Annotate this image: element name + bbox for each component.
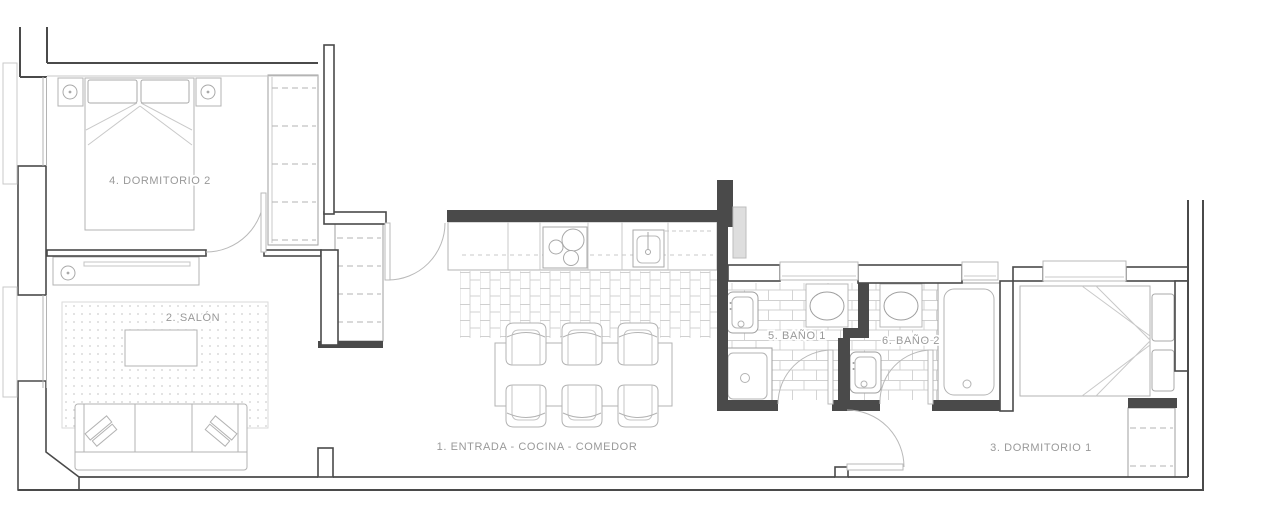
- coffee-table: [125, 330, 197, 366]
- pillow: [88, 80, 137, 103]
- label-dormitorio-2: 4. DORMITORIO 2: [109, 175, 211, 187]
- right-wall: [1188, 200, 1203, 490]
- kitchen-back-wall: [447, 210, 717, 222]
- window-bano-1: [780, 262, 858, 280]
- kitchen-sink: [633, 230, 664, 267]
- cooktop: [543, 227, 587, 268]
- label-bano-2: 6. BAÑO 2: [882, 334, 940, 347]
- washbasin: [806, 284, 848, 327]
- toilet: [727, 292, 758, 333]
- dormitorio1-left-wall: [1000, 281, 1013, 411]
- hall-stub-wall: [318, 448, 333, 477]
- wardrobe-dormitorio-1: [1128, 408, 1175, 477]
- speaker-icon: [61, 266, 75, 280]
- room-dormitorio-2: [58, 75, 318, 245]
- tv-console: [53, 257, 199, 285]
- window-bano-2: [962, 262, 998, 280]
- sofa: [75, 404, 247, 470]
- floor-plan-canvas: 4. DORMITORIO 2 2. SALÓN 1. ENTRADA - CO…: [0, 0, 1264, 531]
- duct-shaft: [733, 207, 746, 258]
- toilet: [850, 352, 881, 393]
- lamp-icon: [201, 85, 215, 99]
- door-entrance: [847, 410, 904, 470]
- dormitorio1-pilaster: [1175, 281, 1188, 371]
- bathroom-left-wall: [717, 222, 728, 411]
- shaft-wall: [717, 180, 733, 227]
- room-salon: [53, 257, 268, 470]
- window-dormitorio-1: [1043, 261, 1126, 281]
- wardrobe-dormitorio-2: [268, 75, 318, 245]
- balcony-outline-top: [3, 63, 17, 184]
- shower: [723, 348, 772, 404]
- pillow: [1152, 294, 1174, 341]
- label-dormitorio-1: 3. DORMITORIO 1: [990, 442, 1092, 454]
- floor-plan-drawing: 4. DORMITORIO 2 2. SALÓN 1. ENTRADA - CO…: [0, 0, 1264, 531]
- top-left-walls: [20, 27, 318, 77]
- door-hallway: [385, 223, 445, 280]
- door-dormitorio-2: [206, 193, 266, 252]
- hall-closet: [335, 224, 383, 341]
- washbasin: [880, 284, 922, 327]
- left-window-pier: [18, 166, 46, 295]
- pillow: [1152, 350, 1174, 391]
- bathroom-divider-wall: [858, 281, 869, 336]
- window-salon: [43, 295, 47, 388]
- label-salon: 2. SALÓN: [166, 311, 220, 324]
- entrance-hinge-notch: [835, 467, 848, 477]
- dormitorio2-right-wall: [324, 45, 334, 214]
- dormitorio-1-stub-wall: [1128, 398, 1177, 408]
- bathtub: [938, 283, 1000, 401]
- lamp-icon: [63, 85, 77, 99]
- label-bano-1: 5. BAÑO 1: [768, 329, 826, 342]
- double-bed: [85, 78, 194, 230]
- salon-dormitorio2-wall: [47, 250, 206, 256]
- single-bed: [1020, 286, 1174, 396]
- window-dormitorio-2: [43, 77, 47, 166]
- salon-right-wall: [321, 250, 338, 345]
- label-entrada-cocina-comedor: 1. ENTRADA - COCINA - COMEDOR: [437, 441, 638, 453]
- balcony-outline-bottom: [3, 287, 17, 397]
- pillow: [141, 80, 189, 103]
